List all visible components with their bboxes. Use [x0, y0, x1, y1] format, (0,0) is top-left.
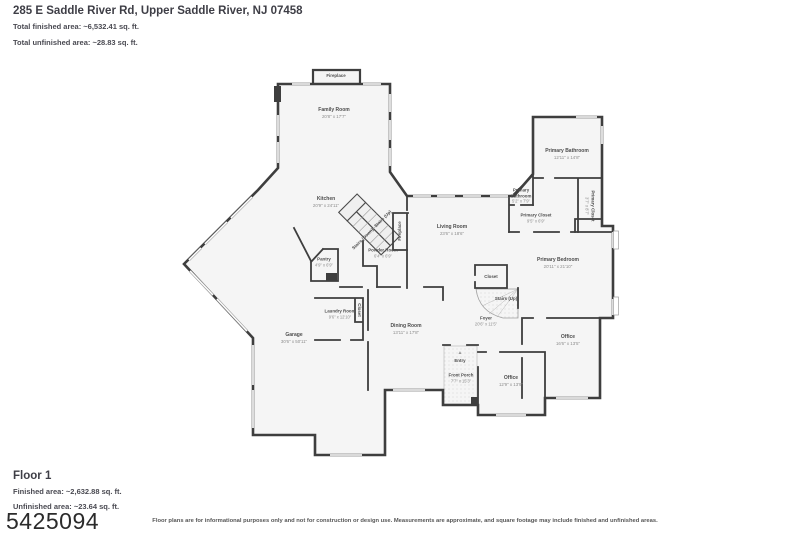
- disclaimer-text: Floor plans are for informational purpos…: [100, 518, 710, 524]
- wall-notch: [274, 86, 281, 102]
- entry-arrow-icon: ▲: [458, 350, 463, 356]
- floor-finished-area: Finished area: ~2,632.88 sq. ft.: [13, 487, 122, 496]
- floor-name: Floor 1: [13, 470, 51, 482]
- floor-plan-svg: [0, 0, 800, 533]
- mls-number: 5425094: [6, 508, 99, 535]
- floor-plan-page: { "header": { "title": "285 E Saddle Riv…: [0, 0, 800, 533]
